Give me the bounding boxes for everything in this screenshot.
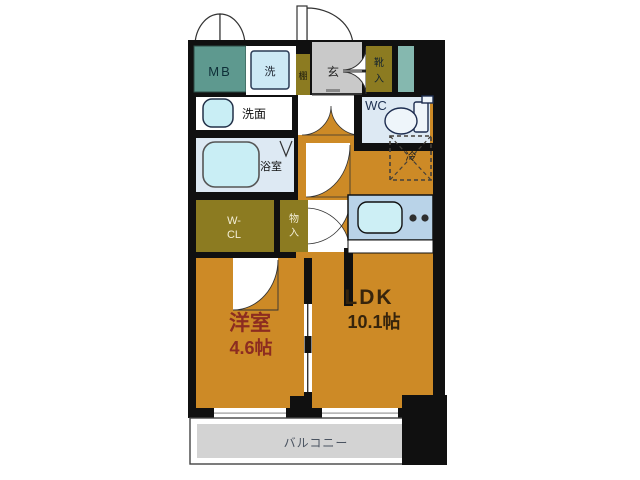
storage-double-door-icon [306,200,350,252]
wall-segment [290,396,312,412]
bedroom-door-icon [233,258,278,310]
sliding-partition-icon [304,258,312,408]
laundry-label: 洗 [265,65,276,78]
wc-label: WC [365,98,387,113]
burner-icon [421,214,428,221]
bathtub-icon [203,142,259,187]
kitchen-sink-icon [358,202,402,233]
wcl-label-1: W- [227,215,241,227]
shoe-closet-label-1: 靴 [374,56,384,69]
floor-plan: MB 洗 棚 玄 靴 入 洗面 WC 浴室 W- CL 物 入 洋室 4. [0,0,640,480]
window-icon [322,408,398,418]
kitchen-counter-icon [348,195,433,253]
ldk-size-label: 10.1帖 [347,311,400,332]
washroom-door-icon [306,143,350,197]
meter-box-label: MB [208,64,232,79]
structural-column [402,395,447,465]
burner-icon [409,214,416,221]
bedroom-name-label: 洋室 [229,311,271,335]
floor-plan-page: MB 洗 棚 玄 靴 入 洗面 WC 浴室 W- CL 物 入 洋室 4. [0,0,640,480]
room-storage [280,200,308,252]
wcl-label-2: CL [227,229,241,241]
bedroom-size-label: 4.6帖 [229,337,272,358]
bathroom-label: 浴室 [260,159,282,173]
window-icon [214,408,286,418]
storage-label-1: 物 [289,212,299,225]
shoe-closet-label-2: 入 [374,74,384,85]
shelf-label: 棚 [298,70,307,81]
washroom-label: 洗面 [242,107,266,121]
sink-icon [203,99,233,127]
storage-label-2: 入 [289,228,299,239]
fridge-label: 冷 [406,150,417,163]
wall-segment [354,95,362,151]
room-shoe-closet [366,46,392,92]
pipe-space [398,46,414,92]
balcony-label: バルコニー [284,436,349,450]
ldk-name-label: LDK [344,286,393,309]
entrance-step [326,89,340,92]
wall-segment [354,143,437,151]
entrance-label: 玄 [327,64,339,79]
